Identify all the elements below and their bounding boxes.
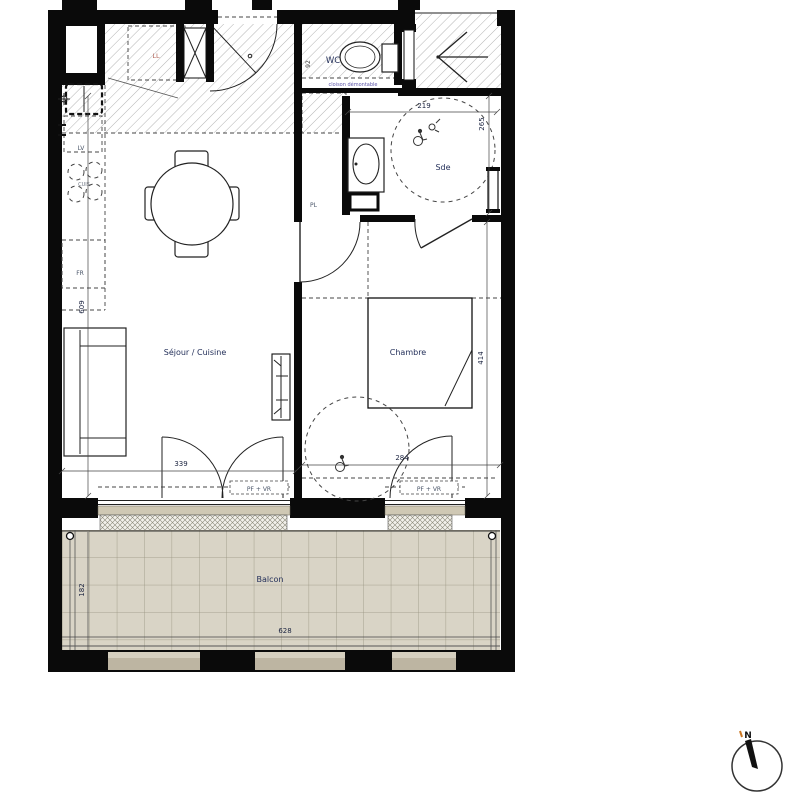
floorplan-svg: PF + VR PF + VR LV CUIS FR	[0, 0, 785, 800]
dining-table	[151, 163, 233, 245]
dim-284: 284	[395, 454, 409, 462]
window-sill	[98, 506, 290, 515]
threshold-hatch	[100, 515, 287, 531]
sofa	[64, 328, 126, 456]
dim-339: 339	[174, 460, 187, 468]
facade-seg	[48, 498, 98, 518]
chambre-door-arc	[300, 222, 360, 282]
left-wall	[48, 10, 62, 672]
dim-182: 182	[78, 583, 86, 596]
railing-panels	[108, 652, 456, 670]
wall-stub	[185, 0, 212, 10]
wc-pl-left-wall	[294, 24, 302, 215]
sejour-label: Séjour / Cuisine	[164, 347, 227, 357]
sde-label: Sde	[435, 163, 450, 172]
shower-zone-hatch	[302, 93, 346, 133]
north-compass: N	[732, 731, 782, 791]
burner-icon	[86, 162, 102, 178]
burner-icon	[68, 164, 84, 180]
dim-265: 265	[478, 117, 486, 130]
french-doors-sejour: PF + VR	[98, 437, 290, 531]
wheelchair-icon	[414, 129, 428, 145]
turning-circle	[305, 397, 409, 501]
radiator-sejour	[272, 354, 290, 420]
washer-label: LL	[152, 52, 160, 60]
dining-set	[145, 151, 239, 257]
wall-seg	[472, 215, 501, 222]
dim-door-width: 92	[305, 60, 312, 68]
technical-shaft	[176, 24, 214, 82]
wall-niche	[66, 26, 97, 73]
sde-door-leaf	[421, 219, 472, 248]
dim-219: 219	[417, 102, 430, 110]
toilet-tank	[382, 44, 398, 72]
french-door-chambre: PF + VR	[385, 436, 465, 531]
front-door-leaf	[404, 30, 414, 80]
entry-hall-hatch	[62, 14, 501, 133]
threshold-hatch	[388, 515, 452, 531]
sejour-chambre-wall	[294, 282, 302, 498]
turning-circle	[391, 98, 495, 202]
towel-radiator	[488, 170, 498, 210]
pf-vr-label: PF + VR	[417, 486, 441, 493]
landing-bottom-wall	[398, 88, 501, 96]
wall-stub	[252, 0, 272, 10]
fridge-box	[62, 240, 105, 288]
wall-seg	[294, 215, 302, 222]
compass-accent	[740, 731, 742, 737]
dim-414: 414	[477, 351, 485, 365]
chambre-label: Chambre	[390, 348, 427, 357]
wheelchair-icon	[336, 455, 350, 471]
dishwasher-label: LV	[78, 145, 86, 152]
landing-hatch	[416, 14, 501, 88]
cloison-note: cloison démontable	[328, 81, 377, 88]
balcony-post	[489, 533, 496, 540]
balcon-label: Balcon	[257, 575, 284, 584]
cloison-demontable-wall	[294, 88, 400, 93]
pl-label: PL	[310, 202, 318, 209]
sde-door-arc	[415, 219, 421, 248]
compass-needle	[745, 739, 758, 769]
dim-609: 609	[78, 300, 86, 313]
window-sill	[385, 506, 465, 515]
north-label: N	[744, 731, 752, 741]
wall-seg	[360, 215, 415, 222]
shower-icon	[429, 119, 440, 132]
burner-icon	[68, 186, 84, 202]
balcony-post	[67, 533, 74, 540]
facade-seg	[465, 498, 515, 518]
fridge-label: FR	[76, 270, 84, 277]
balcony: Balcon 182 628	[48, 530, 515, 672]
wall-stub	[398, 0, 420, 10]
wc-label: WC	[326, 56, 340, 66]
toilet-bowl	[340, 42, 380, 72]
top-wall-mid	[277, 10, 415, 24]
floorplan-page: PF + VR PF + VR LV CUIS FR	[0, 0, 785, 800]
right-wall	[501, 12, 515, 672]
pf-vr-label: PF + VR	[247, 486, 271, 493]
dim-628: 628	[278, 627, 291, 635]
sde-cabinet	[350, 194, 378, 210]
facade-seg	[290, 498, 385, 518]
